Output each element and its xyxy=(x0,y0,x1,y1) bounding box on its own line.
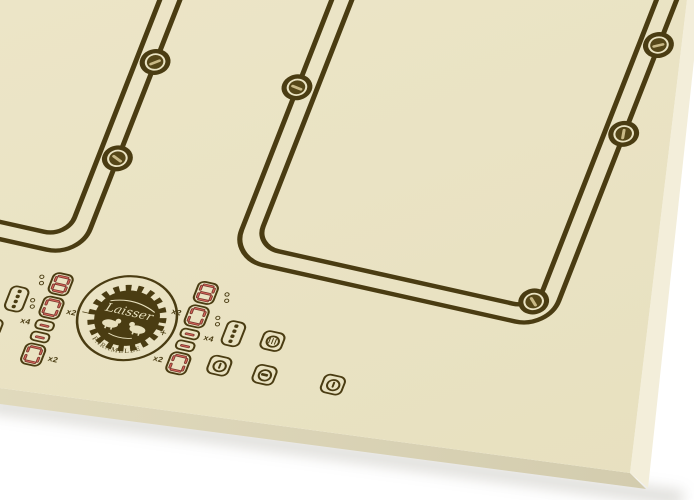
setting-dots xyxy=(31,276,51,284)
right-panel-inner-border xyxy=(252,0,694,311)
setting-dots xyxy=(207,317,227,325)
multiplier-label xyxy=(195,348,214,352)
key-icon xyxy=(250,363,280,387)
seven-segment-digit xyxy=(18,341,48,368)
seven-segment-digit xyxy=(46,271,76,298)
multiplier-label xyxy=(189,366,208,370)
multiplier-label xyxy=(4,348,23,352)
info-icon xyxy=(318,372,348,396)
board-scene: Laisser FARAMELLE − + x2x4x2 x2x4x2 xyxy=(0,0,694,500)
right-panel-border xyxy=(227,0,694,331)
setting-dots xyxy=(216,293,236,301)
seven-segment-digit xyxy=(182,303,212,330)
multiplier-label xyxy=(157,339,176,343)
multiplier-label: x2 xyxy=(61,306,83,319)
multiplier-label xyxy=(161,328,180,332)
seven-segment-digit xyxy=(191,280,221,307)
multiplier-label xyxy=(71,287,90,291)
seven-segment-digit xyxy=(163,350,193,377)
multiplier-label: x2 xyxy=(42,353,64,366)
seven-segment-digit xyxy=(37,294,67,321)
bars-icon xyxy=(257,329,287,353)
multiplier-label xyxy=(50,339,69,343)
multiplier-label: x4 xyxy=(198,332,220,345)
multiplier-label xyxy=(54,327,73,331)
multiplier-label xyxy=(177,286,196,290)
multiplier-label xyxy=(12,331,31,335)
